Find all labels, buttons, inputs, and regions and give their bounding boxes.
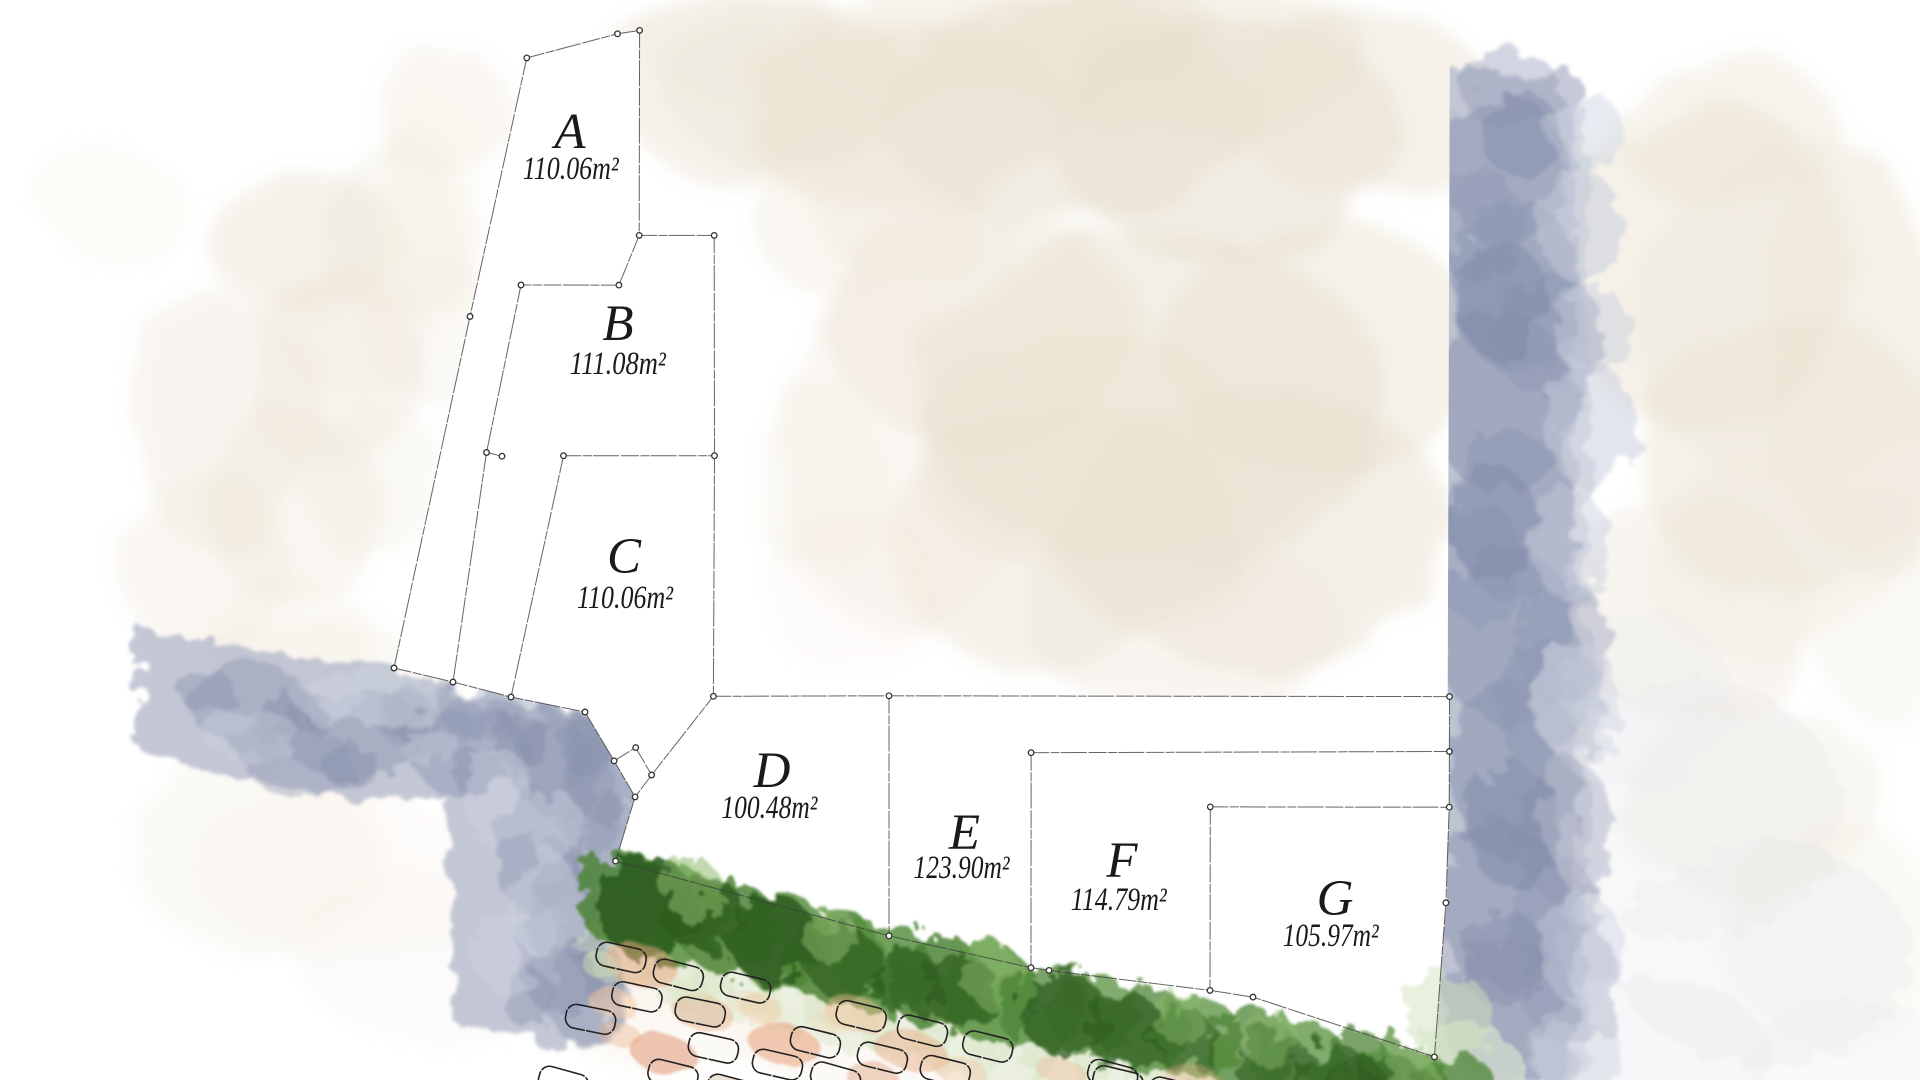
svg-text:105.97m²: 105.97m² [1283, 918, 1380, 954]
svg-text:100.48m²: 100.48m² [721, 790, 818, 826]
svg-text:B: B [602, 296, 633, 352]
svg-text:114.79m²: 114.79m² [1071, 882, 1168, 918]
svg-text:110.06m²: 110.06m² [523, 151, 620, 187]
svg-text:123.90m²: 123.90m² [914, 850, 1011, 886]
svg-text:F: F [1105, 833, 1138, 889]
svg-text:111.08m²: 111.08m² [570, 346, 667, 382]
svg-text:110.06m²: 110.06m² [577, 580, 674, 616]
svg-text:C: C [607, 529, 642, 585]
